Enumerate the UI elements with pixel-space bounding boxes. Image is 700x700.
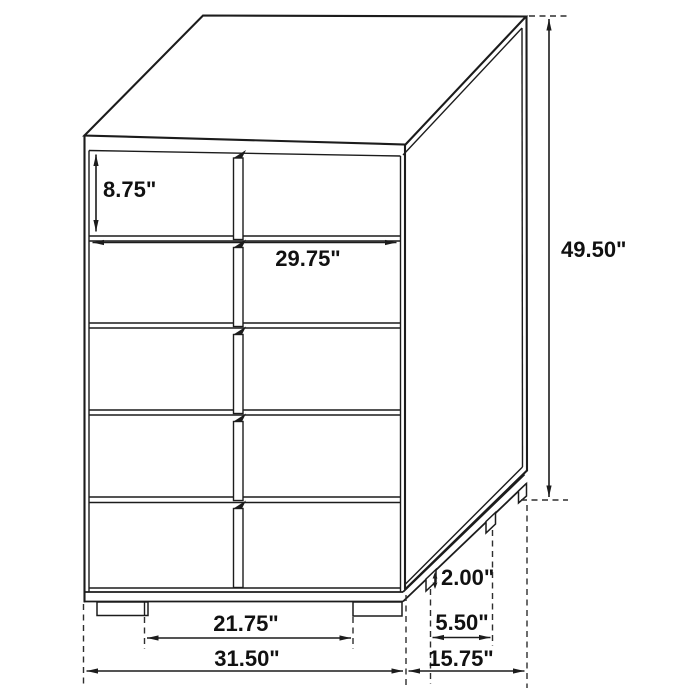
drawer-handle [234,422,244,501]
base-and-legs [84,475,527,617]
dim-drawer-height: 8.75" [96,155,156,232]
dim-depth: 15.75" [409,505,528,688]
dim-leg-height: 2.00" [433,565,495,590]
top-band-side [403,28,522,155]
drawer-grid [89,236,401,588]
chest-dimension-diagram: 8.75" 29.75" 49.50" 2.00" 5.50" 15.75" 2… [0,0,700,700]
dim-drawer-width: 29.75" [93,243,397,272]
drawer-handle [234,158,244,240]
chest-outline [85,16,528,602]
side-inner-back-edge [522,28,523,467]
drawer-height-label: 8.75" [103,177,156,202]
drawer-handle [234,248,244,327]
drawer-handle [234,335,244,414]
front-right-leg [353,602,402,616]
side-back-edge [527,17,528,471]
dim-front-leg-spacing: 21.75" [145,611,354,649]
leg-height-label: 2.00" [441,565,494,590]
front-left-leg [97,602,148,616]
arrowhead-down [433,583,438,590]
overall-width-label: 31.50" [214,646,279,671]
depth-label: 15.75" [428,646,493,671]
dim-overall-height: 49.50" [521,16,626,500]
drawer-handles [234,150,247,588]
drawer-width-label: 29.75" [275,246,340,271]
dimension-diagram-page: 8.75" 29.75" 49.50" 2.00" 5.50" 15.75" 2… [0,0,700,700]
handle-chamfer [234,501,247,509]
drawer-handle [234,509,244,588]
overall-height-label: 49.50" [561,237,626,262]
front-leg-spacing-label: 21.75" [213,611,278,636]
leg-side-spacing-label: 5.50" [435,610,488,635]
side-middle-leg [486,513,496,534]
handle-chamfer [234,150,247,158]
top-face [85,16,527,145]
